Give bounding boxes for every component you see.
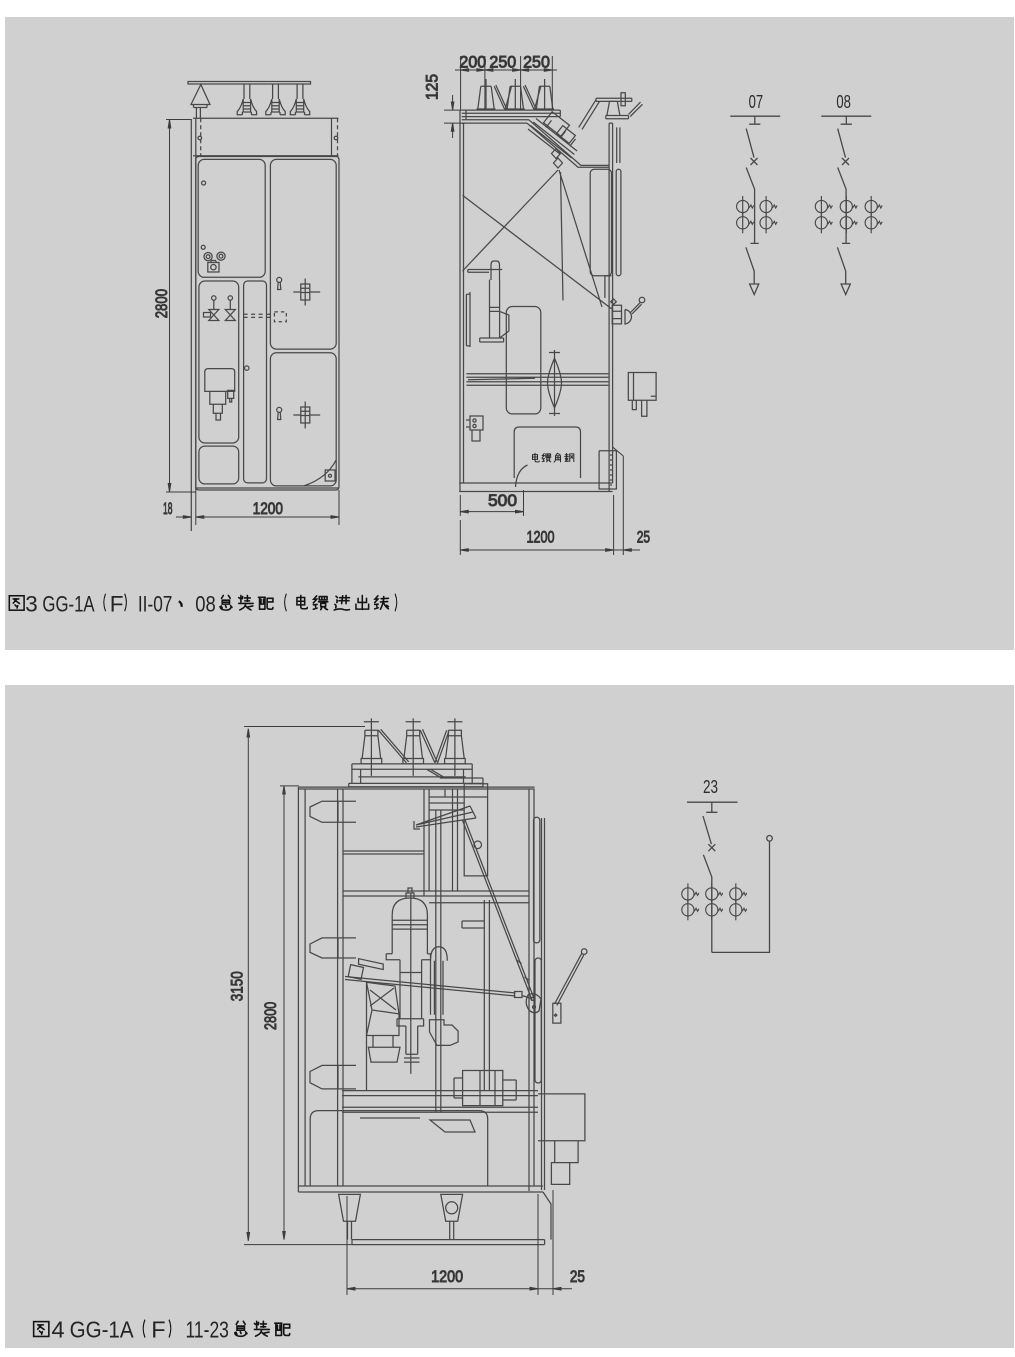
svg-text:08: 08	[195, 591, 216, 616]
svg-text:08: 08	[836, 92, 851, 112]
svg-text:500: 500	[488, 491, 517, 510]
svg-text:125: 125	[422, 74, 441, 100]
svg-text:GG-1A: GG-1A	[70, 1317, 134, 1343]
svg-text:2800: 2800	[261, 1002, 280, 1030]
svg-text:II-07: II-07	[138, 591, 173, 616]
svg-text:3150: 3150	[228, 971, 247, 1001]
svg-text:4: 4	[52, 1317, 65, 1343]
svg-text:1200: 1200	[431, 1267, 463, 1286]
svg-text:3: 3	[25, 591, 38, 616]
svg-text:25: 25	[637, 527, 650, 546]
svg-text:23: 23	[703, 777, 718, 797]
svg-text:250: 250	[489, 52, 516, 71]
svg-text:11-23: 11-23	[186, 1317, 229, 1343]
svg-text:07: 07	[749, 92, 764, 112]
svg-text:18: 18	[163, 499, 173, 518]
svg-text:F: F	[110, 591, 124, 616]
svg-text:250: 250	[523, 52, 550, 71]
svg-text:F: F	[151, 1317, 165, 1343]
svg-text:1200: 1200	[527, 527, 555, 546]
svg-text:200: 200	[459, 52, 486, 71]
svg-text:GG-1A: GG-1A	[42, 591, 94, 616]
svg-text:2800: 2800	[152, 289, 171, 318]
svg-text:1200: 1200	[253, 499, 283, 518]
svg-text:25: 25	[570, 1267, 585, 1286]
